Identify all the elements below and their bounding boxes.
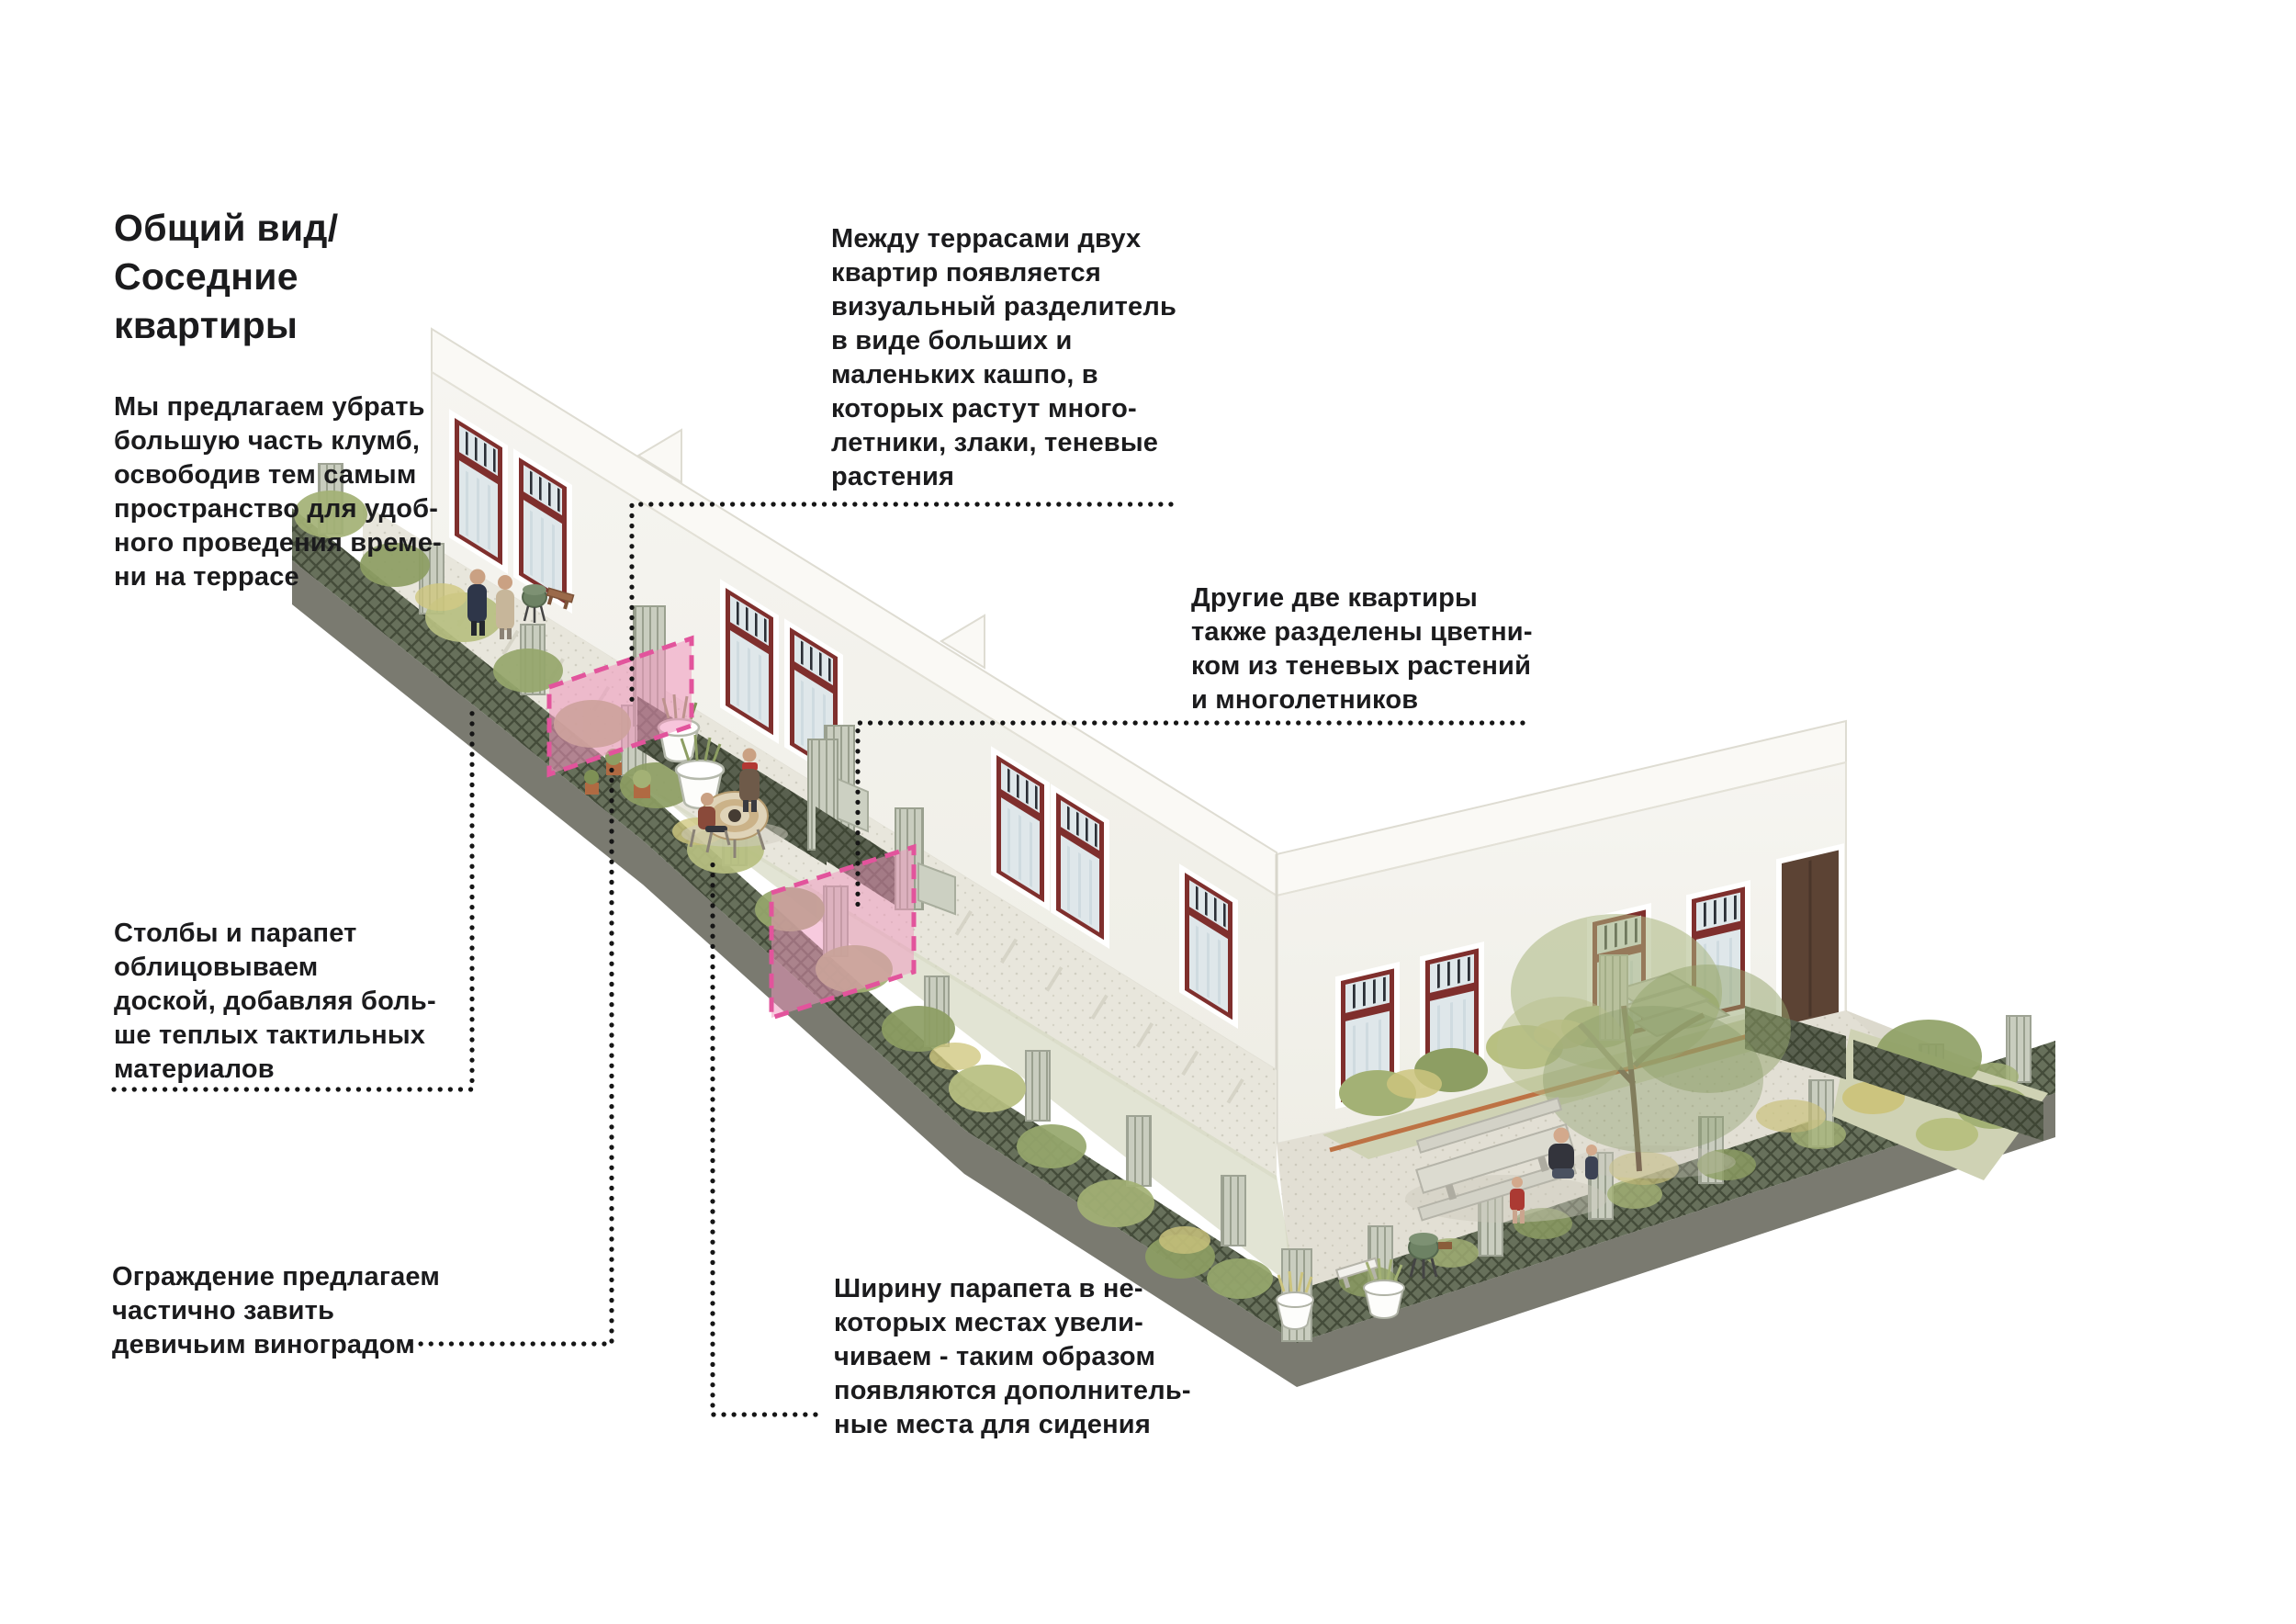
note-flowerbed-divider: Другие две квартиры также разделены цвет… (1191, 581, 1533, 717)
entrance-door (1776, 843, 1844, 1033)
note-fence-vines: Ограждение предлагаем частично завить де… (112, 1260, 440, 1362)
note-remove-flowerbeds: Мы предлагаем убрать большую часть клумб… (114, 390, 442, 594)
note-parapet-cladding: Столбы и парапет облицовываем доской, до… (114, 917, 436, 1087)
page-title: Общий вид/ Соседние квартиры (114, 204, 338, 350)
note-planter-divider: Между террасами двух квартир появляется … (831, 222, 1176, 494)
page: Общий вид/ Соседние квартиры Мы предлага… (0, 0, 2296, 1624)
leader-fence-vines (411, 770, 612, 1344)
note-parapet-width: Ширину парапета в не- которых местах уве… (834, 1272, 1191, 1442)
walkway-grill (523, 584, 546, 623)
